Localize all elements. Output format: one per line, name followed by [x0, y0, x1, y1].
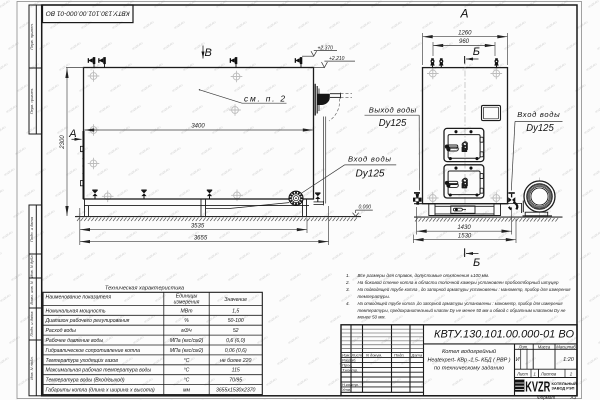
svg-text:2.: 2. [345, 280, 350, 285]
svg-text:На подводящей трубе котла ,: На подводящей трубе котла , до запорной … [358, 286, 572, 292]
svg-text:Б: Б [473, 257, 480, 269]
svg-text:МПа (кгс/см2): МПа (кгс/см2) [170, 348, 204, 354]
svg-text:°С: °С [184, 378, 190, 384]
svg-text:Температура воды (Вход/выход): Температура воды (Вход/выход) [46, 378, 125, 384]
svg-text:менее 50 мм.: менее 50 мм. [358, 315, 386, 320]
svg-text:1: 1 [534, 371, 536, 376]
svg-text:Перв. примен.: Перв. примен. [29, 23, 34, 50]
svg-text:3.: 3. [346, 287, 350, 292]
svg-text:Б: Б [473, 46, 480, 58]
svg-text:Dy125: Dy125 [526, 123, 554, 134]
svg-text:Подп. и дата: Подп. и дата [29, 216, 34, 242]
svg-text:960: 960 [459, 39, 470, 45]
svg-text:КВТУ.130.101.00.000-01 ВО: КВТУ.130.101.00.000-01 ВО [434, 328, 574, 340]
svg-text:измерения: измерения [174, 300, 200, 306]
svg-text:1260: 1260 [458, 30, 472, 36]
svg-text:Лист: Лист [516, 371, 528, 376]
svg-text:В: В [205, 47, 212, 59]
svg-text:Выход воды: Выход воды [369, 106, 417, 115]
svg-text:1.: 1. [346, 273, 350, 278]
svg-text:Температура уходящих газов: Температура уходящих газов [46, 358, 119, 364]
svg-text:Расход воды: Расход воды [46, 328, 77, 334]
svg-text:115: 115 [232, 368, 240, 374]
svg-text:Диапазон рабочего регулировани: Диапазон рабочего регулирования [45, 318, 130, 324]
svg-text:Подп. и дата: Подп. и дата [29, 311, 34, 337]
svg-text:Взам. инв. N: Взам. инв. N [29, 281, 34, 304]
svg-text:по техническому заданию: по техническому заданию [434, 366, 505, 372]
svg-text:не более 220: не более 220 [220, 358, 252, 364]
svg-text:мм: мм [183, 388, 191, 394]
svg-text:3655х1530х2370: 3655х1530х2370 [216, 388, 256, 394]
svg-text:Dy125: Dy125 [356, 169, 385, 180]
svg-text:N докум.: N докум. [366, 352, 382, 357]
svg-text:Рабочее давление воды: Рабочее давление воды [46, 338, 104, 344]
svg-text:1:20: 1:20 [563, 357, 575, 363]
svg-text:0,06 (0,6): 0,06 (0,6) [225, 348, 247, 354]
svg-text:МПа (кгс/см2): МПа (кгс/см2) [170, 338, 204, 344]
svg-text:1,5: 1,5 [232, 308, 239, 314]
svg-text:Подп.: Подп. [394, 352, 405, 357]
svg-text:Вход воды: Вход воды [348, 155, 391, 164]
svg-text:4.: 4. [346, 301, 350, 306]
svg-text:Максимальная рабочая температу: Максимальная рабочая температура воды [46, 368, 152, 374]
svg-text:ЗАВОД РЭП: ЗАВОД РЭП [552, 386, 575, 391]
svg-text:Утв.: Утв. [342, 387, 351, 392]
svg-text:А: А [460, 6, 469, 20]
svg-text:Инв. N дубл.: Инв. N дубл. [29, 254, 34, 277]
svg-text:На отводящей трубе котла ,до з: На отводящей трубе котла ,до запорной ар… [358, 300, 564, 306]
svg-text:1530: 1530 [458, 233, 472, 239]
svg-text:+2.210: +2.210 [329, 56, 345, 62]
svg-text:Листов: Листов [540, 371, 557, 376]
svg-text:Техническая характеристика: Техническая характеристика [105, 285, 184, 291]
svg-text:На боковой стенке котла в обла: На боковой стенке котла в области топочн… [358, 279, 559, 285]
svg-text:50-100: 50-100 [228, 318, 244, 324]
svg-text:Все размеры для справок, допус: Все размеры для справок, допустимые откл… [358, 273, 490, 278]
svg-text:°С: °С [184, 358, 190, 364]
svg-text:Гидравлическое сопротивление к: Гидравлическое сопротивление котла [46, 348, 141, 354]
svg-text:КВТУ.130.101.00.000-01 ВО: КВТУ.130.101.00.000-01 ВО [46, 10, 130, 17]
svg-text:температуры, предохранительный: температуры, предохранительный клапан Dу… [358, 307, 566, 313]
svg-text:Heatexpert- КВр -1,5- КБД ( РВ: Heatexpert- КВр -1,5- КБД ( РВР ) [428, 358, 511, 364]
svg-text:3535: 3535 [191, 223, 205, 229]
svg-text:Dy125: Dy125 [379, 118, 407, 129]
svg-text:3655: 3655 [194, 235, 208, 241]
svg-text:Инв. N подл.: Инв. N подл. [29, 356, 34, 379]
svg-text:Дата: Дата [411, 352, 423, 357]
svg-text:температуры.: температуры. [358, 294, 391, 299]
svg-text:МВт: МВт [181, 308, 194, 314]
svg-text:Вход воды: Вход воды [517, 110, 560, 119]
svg-text:Наименование показателя: Наименование показателя [46, 295, 112, 301]
svg-text:Т.контр.: Т.контр. [342, 367, 358, 372]
svg-text:И: И [516, 357, 520, 363]
svg-text:м3/ч: м3/ч [181, 328, 192, 334]
svg-text:°С: °С [184, 368, 190, 374]
svg-text:+2.370: +2.370 [318, 45, 334, 51]
svg-text:А: А [68, 128, 76, 140]
svg-text:2300: 2300 [60, 135, 66, 150]
svg-text:Значение: Значение [224, 297, 247, 303]
svg-text:Габариты котла (длина х ширина: Габариты котла (длина х ширина х высота) [46, 388, 155, 394]
svg-text:Масштаб: Масштаб [556, 344, 576, 349]
svg-text:KVZR: KVZR [525, 378, 550, 395]
svg-text:0,6 (6,0): 0,6 (6,0) [226, 338, 245, 344]
svg-text:Номинальная мощность: Номинальная мощность [46, 308, 106, 314]
svg-text:0.000: 0.000 [359, 204, 372, 210]
svg-text:А3: А3 [570, 395, 577, 400]
svg-text:3400: 3400 [191, 123, 205, 129]
svg-text:Котел водогрейный: Котел водогрейный [442, 348, 497, 355]
svg-text:1430: 1430 [457, 225, 471, 231]
svg-text:%: % [184, 318, 189, 324]
svg-text:Лит.: Лит. [518, 344, 529, 349]
svg-text:70/95: 70/95 [229, 378, 242, 384]
svg-text:Формат: Формат [537, 395, 555, 400]
svg-text:Масса: Масса [538, 344, 551, 349]
svg-text:52: 52 [233, 328, 239, 334]
svg-text:Перв. примен.: Перв. примен. [29, 88, 34, 115]
